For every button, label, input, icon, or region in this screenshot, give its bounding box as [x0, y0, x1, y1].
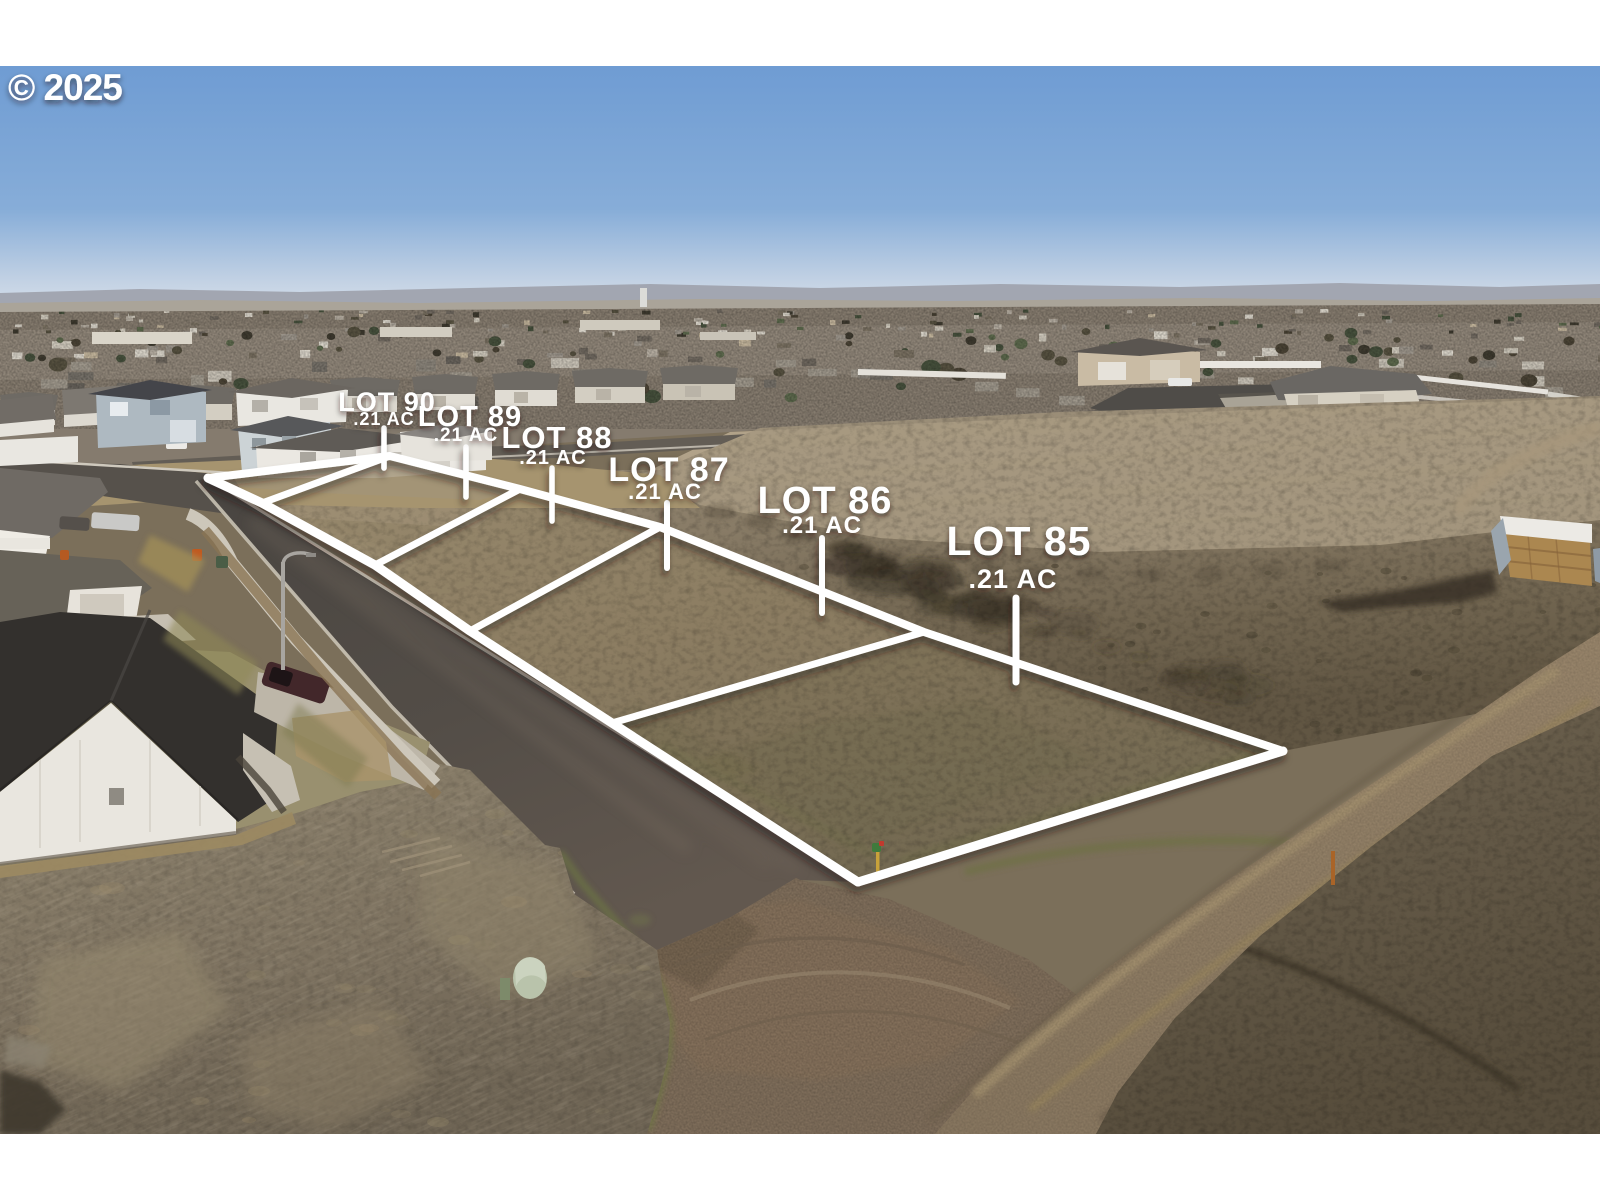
svg-text:.21 AC: .21 AC	[782, 512, 862, 539]
svg-text:.21 AC: .21 AC	[628, 479, 702, 504]
svg-text:.21 AC: .21 AC	[434, 425, 498, 446]
svg-text:© 2025: © 2025	[8, 67, 122, 108]
svg-text:.21 AC: .21 AC	[519, 447, 587, 469]
svg-text:LOT 85: LOT 85	[947, 518, 1092, 564]
svg-text:.21 AC: .21 AC	[968, 564, 1057, 594]
svg-text:.21 AC: .21 AC	[353, 409, 414, 429]
